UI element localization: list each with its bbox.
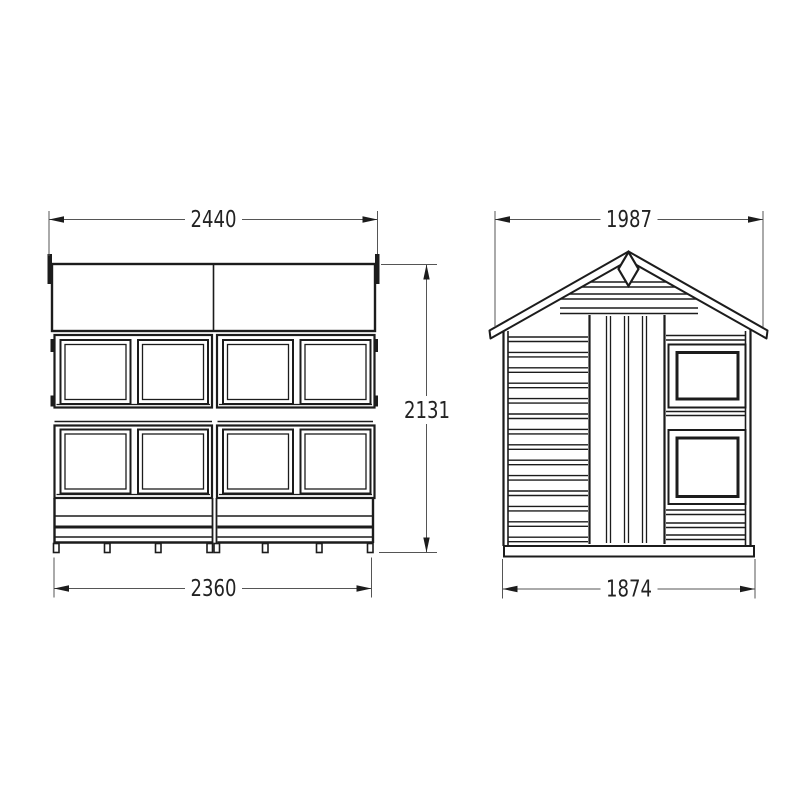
shed-technical-drawing: 2440 2131 2360 (0, 0, 800, 800)
side-wall-cladding (508, 337, 588, 542)
dim-side-overall-width: 1987 (606, 207, 652, 233)
front-feet (54, 544, 374, 553)
side-dimension-base-width: 1874 (503, 559, 756, 603)
side-base (504, 546, 754, 557)
front-left-corner-trim (48, 254, 53, 284)
front-dimension-overall-width: 2440 (49, 206, 378, 256)
dim-front-base-width: 2360 (191, 576, 237, 602)
drawing-svg: 2440 2131 2360 (0, 0, 800, 800)
front-dimension-base-width: 2360 (54, 558, 372, 603)
side-bottom-window (669, 430, 746, 504)
front-upper-window-row (51, 335, 379, 408)
side-windows (666, 336, 746, 540)
front-roof-band (48, 254, 380, 331)
gable-end-view (490, 252, 768, 557)
dim-front-height: 2131 (404, 398, 450, 424)
dim-front-overall-width: 2440 (191, 207, 237, 233)
front-lower-panel-row (55, 426, 375, 499)
front-right-corner-trim (375, 254, 380, 284)
dim-side-base-width: 1874 (606, 577, 652, 603)
door (590, 315, 665, 544)
front-base-planks (55, 498, 374, 543)
front-elevation-view (48, 254, 380, 553)
front-dimension-height: 2131 (379, 265, 454, 553)
